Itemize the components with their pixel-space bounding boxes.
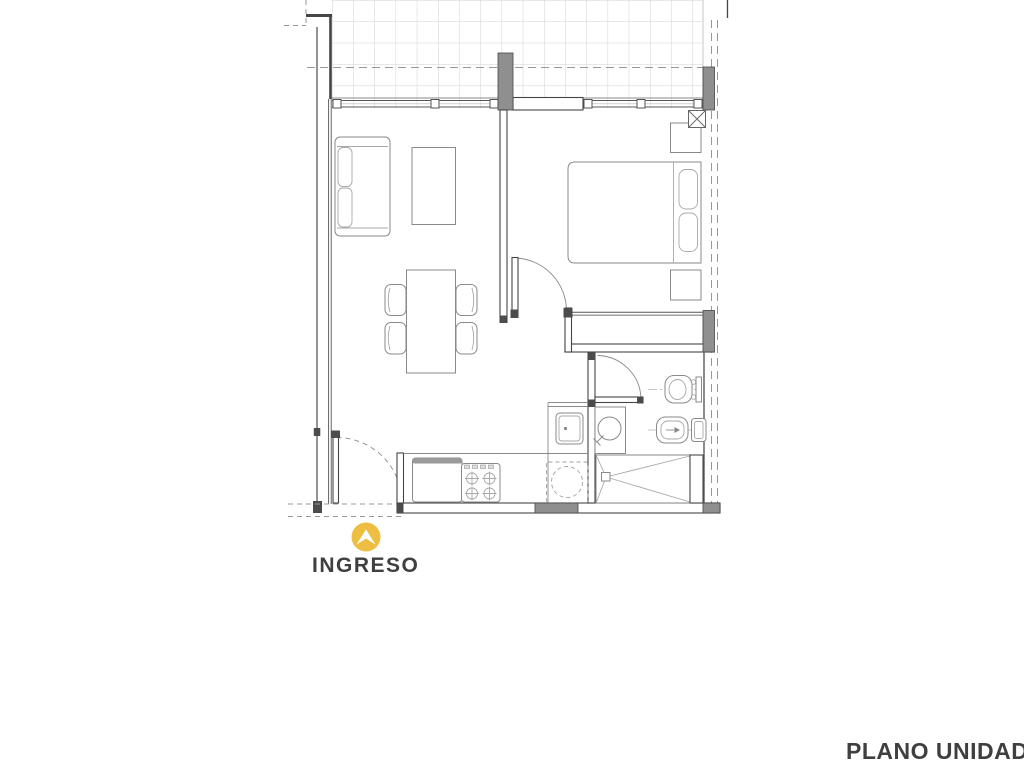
shower-ledge [690, 455, 703, 503]
washing-machine [547, 462, 589, 503]
tile-grid [332, 0, 703, 108]
sofa [335, 137, 390, 236]
floor-plan-drawing [0, 0, 1024, 768]
toilet [648, 376, 702, 404]
column-pillar-right [703, 67, 715, 110]
coffee-table [412, 148, 456, 225]
partition-wall [500, 110, 508, 323]
bottom-wall [288, 502, 720, 517]
left-wall [313, 27, 331, 513]
nightstand [671, 270, 702, 300]
bidet [648, 417, 706, 443]
bathroom-door [595, 356, 644, 404]
floor-plan-page: INGRESO PLANO UNIDAD [0, 0, 1024, 768]
bedroom-door [511, 258, 567, 319]
bed [568, 162, 701, 263]
dining-set [385, 270, 477, 373]
entrance-label: INGRESO [312, 554, 419, 578]
stove [462, 464, 501, 503]
entry-door [331, 431, 402, 504]
facade-wall-segment [513, 98, 583, 111]
column-pillar-middle [498, 53, 513, 110]
bathroom-sink [594, 407, 626, 454]
kitchen-sink [556, 413, 583, 444]
ingreso-marker-icon [352, 523, 381, 552]
shaft-x-box [689, 111, 706, 128]
dining-table [407, 270, 456, 373]
wardrobe [564, 308, 715, 352]
plan-title: PLANO UNIDAD [846, 738, 1024, 765]
shower [596, 455, 703, 503]
fridge [413, 458, 463, 502]
